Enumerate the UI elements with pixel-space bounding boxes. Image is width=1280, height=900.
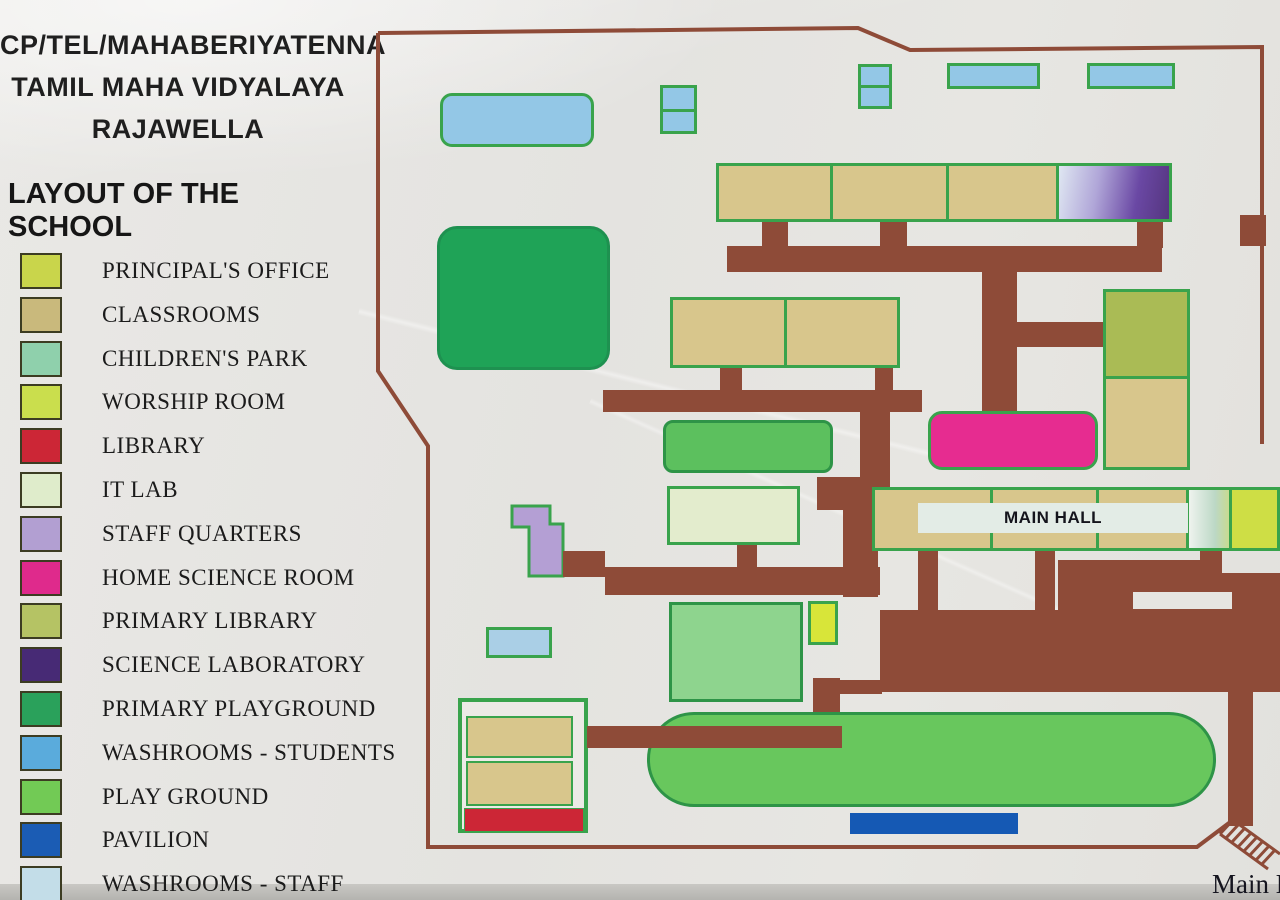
- washroom-cell: [861, 88, 889, 106]
- path-stub: [720, 365, 742, 392]
- classroom-cell: [949, 166, 1055, 219]
- washroom-cell: [663, 88, 694, 109]
- building-worship-room: [808, 601, 838, 645]
- path-stub: [875, 365, 893, 392]
- washroom-cell: [663, 112, 694, 131]
- building-primary-library-stack: [1103, 289, 1190, 470]
- classroom-cell: [719, 166, 830, 219]
- classroom-cell: [787, 300, 898, 365]
- building-classroom-row-middle: [670, 297, 900, 368]
- path-stub: [1240, 215, 1266, 246]
- classroom-cell: [833, 166, 946, 219]
- entrance-stairs-icon: [1220, 820, 1280, 869]
- path-courtyard: [880, 610, 1255, 692]
- path-corridor-upper: [727, 246, 1162, 272]
- classroom-cell: [466, 716, 573, 758]
- building-classroom-row-upper: [716, 163, 1172, 222]
- building-play-ground-small: [663, 420, 833, 473]
- path-stub: [918, 550, 938, 612]
- building-staff-quarters: [512, 506, 563, 576]
- classroom-cell: [1106, 379, 1187, 467]
- main-hall-banner: MAIN HALL: [918, 503, 1188, 533]
- path-corridor-lower: [587, 726, 842, 748]
- path-stub: [737, 543, 757, 569]
- courtyard-notch: [1133, 592, 1232, 609]
- main-entrance-label: Main E: [1212, 869, 1280, 900]
- building-home-science-room: [928, 411, 1098, 470]
- classroom-cell: [673, 300, 784, 365]
- path-vertical-mainhall-link: [860, 410, 890, 480]
- washroom-cell: [861, 67, 889, 85]
- building-lower-block: [458, 698, 588, 833]
- path-arm-primary-library: [1017, 322, 1103, 347]
- building-it-lab: [667, 486, 800, 545]
- building-washrooms-students-small: [947, 63, 1040, 89]
- classroom-cell: [466, 761, 573, 806]
- school-layout-sign: CP/TEL/MAHABERIYATENNA TAMIL MAHA VIDYAL…: [0, 0, 1280, 900]
- path-stub: [880, 222, 907, 248]
- path-stub: [1035, 550, 1055, 612]
- path-staff-connector: [563, 551, 605, 577]
- path-corridor-middle: [603, 390, 922, 412]
- path-vertical-entrance: [1228, 692, 1253, 826]
- building-washrooms-students-large: [440, 93, 594, 147]
- path-stub: [1137, 220, 1163, 248]
- path-stub: [762, 222, 788, 248]
- path-corridor-staff: [605, 567, 880, 595]
- primary-library-cell: [1106, 292, 1187, 376]
- main-hall-label: MAIN HALL: [1004, 508, 1102, 528]
- science-laboratory-cell: [1059, 166, 1169, 219]
- principals-office-cell: [1232, 490, 1277, 548]
- path-vertical-center: [982, 272, 1017, 412]
- building-washrooms-students-small: [1087, 63, 1175, 89]
- path-arm-courtyard: [838, 680, 882, 694]
- main-hall-glare-cell: [1189, 490, 1228, 548]
- building-washrooms-staff: [486, 627, 552, 658]
- building-primary-playground: [437, 226, 610, 370]
- building-childrens-park: [669, 602, 803, 702]
- building-washrooms-students-pair: [858, 64, 892, 109]
- path-courtyard-east: [1218, 573, 1280, 692]
- building-washrooms-students-pair: [660, 85, 697, 134]
- building-pavilion: [850, 813, 1018, 834]
- library-cell: [464, 808, 584, 832]
